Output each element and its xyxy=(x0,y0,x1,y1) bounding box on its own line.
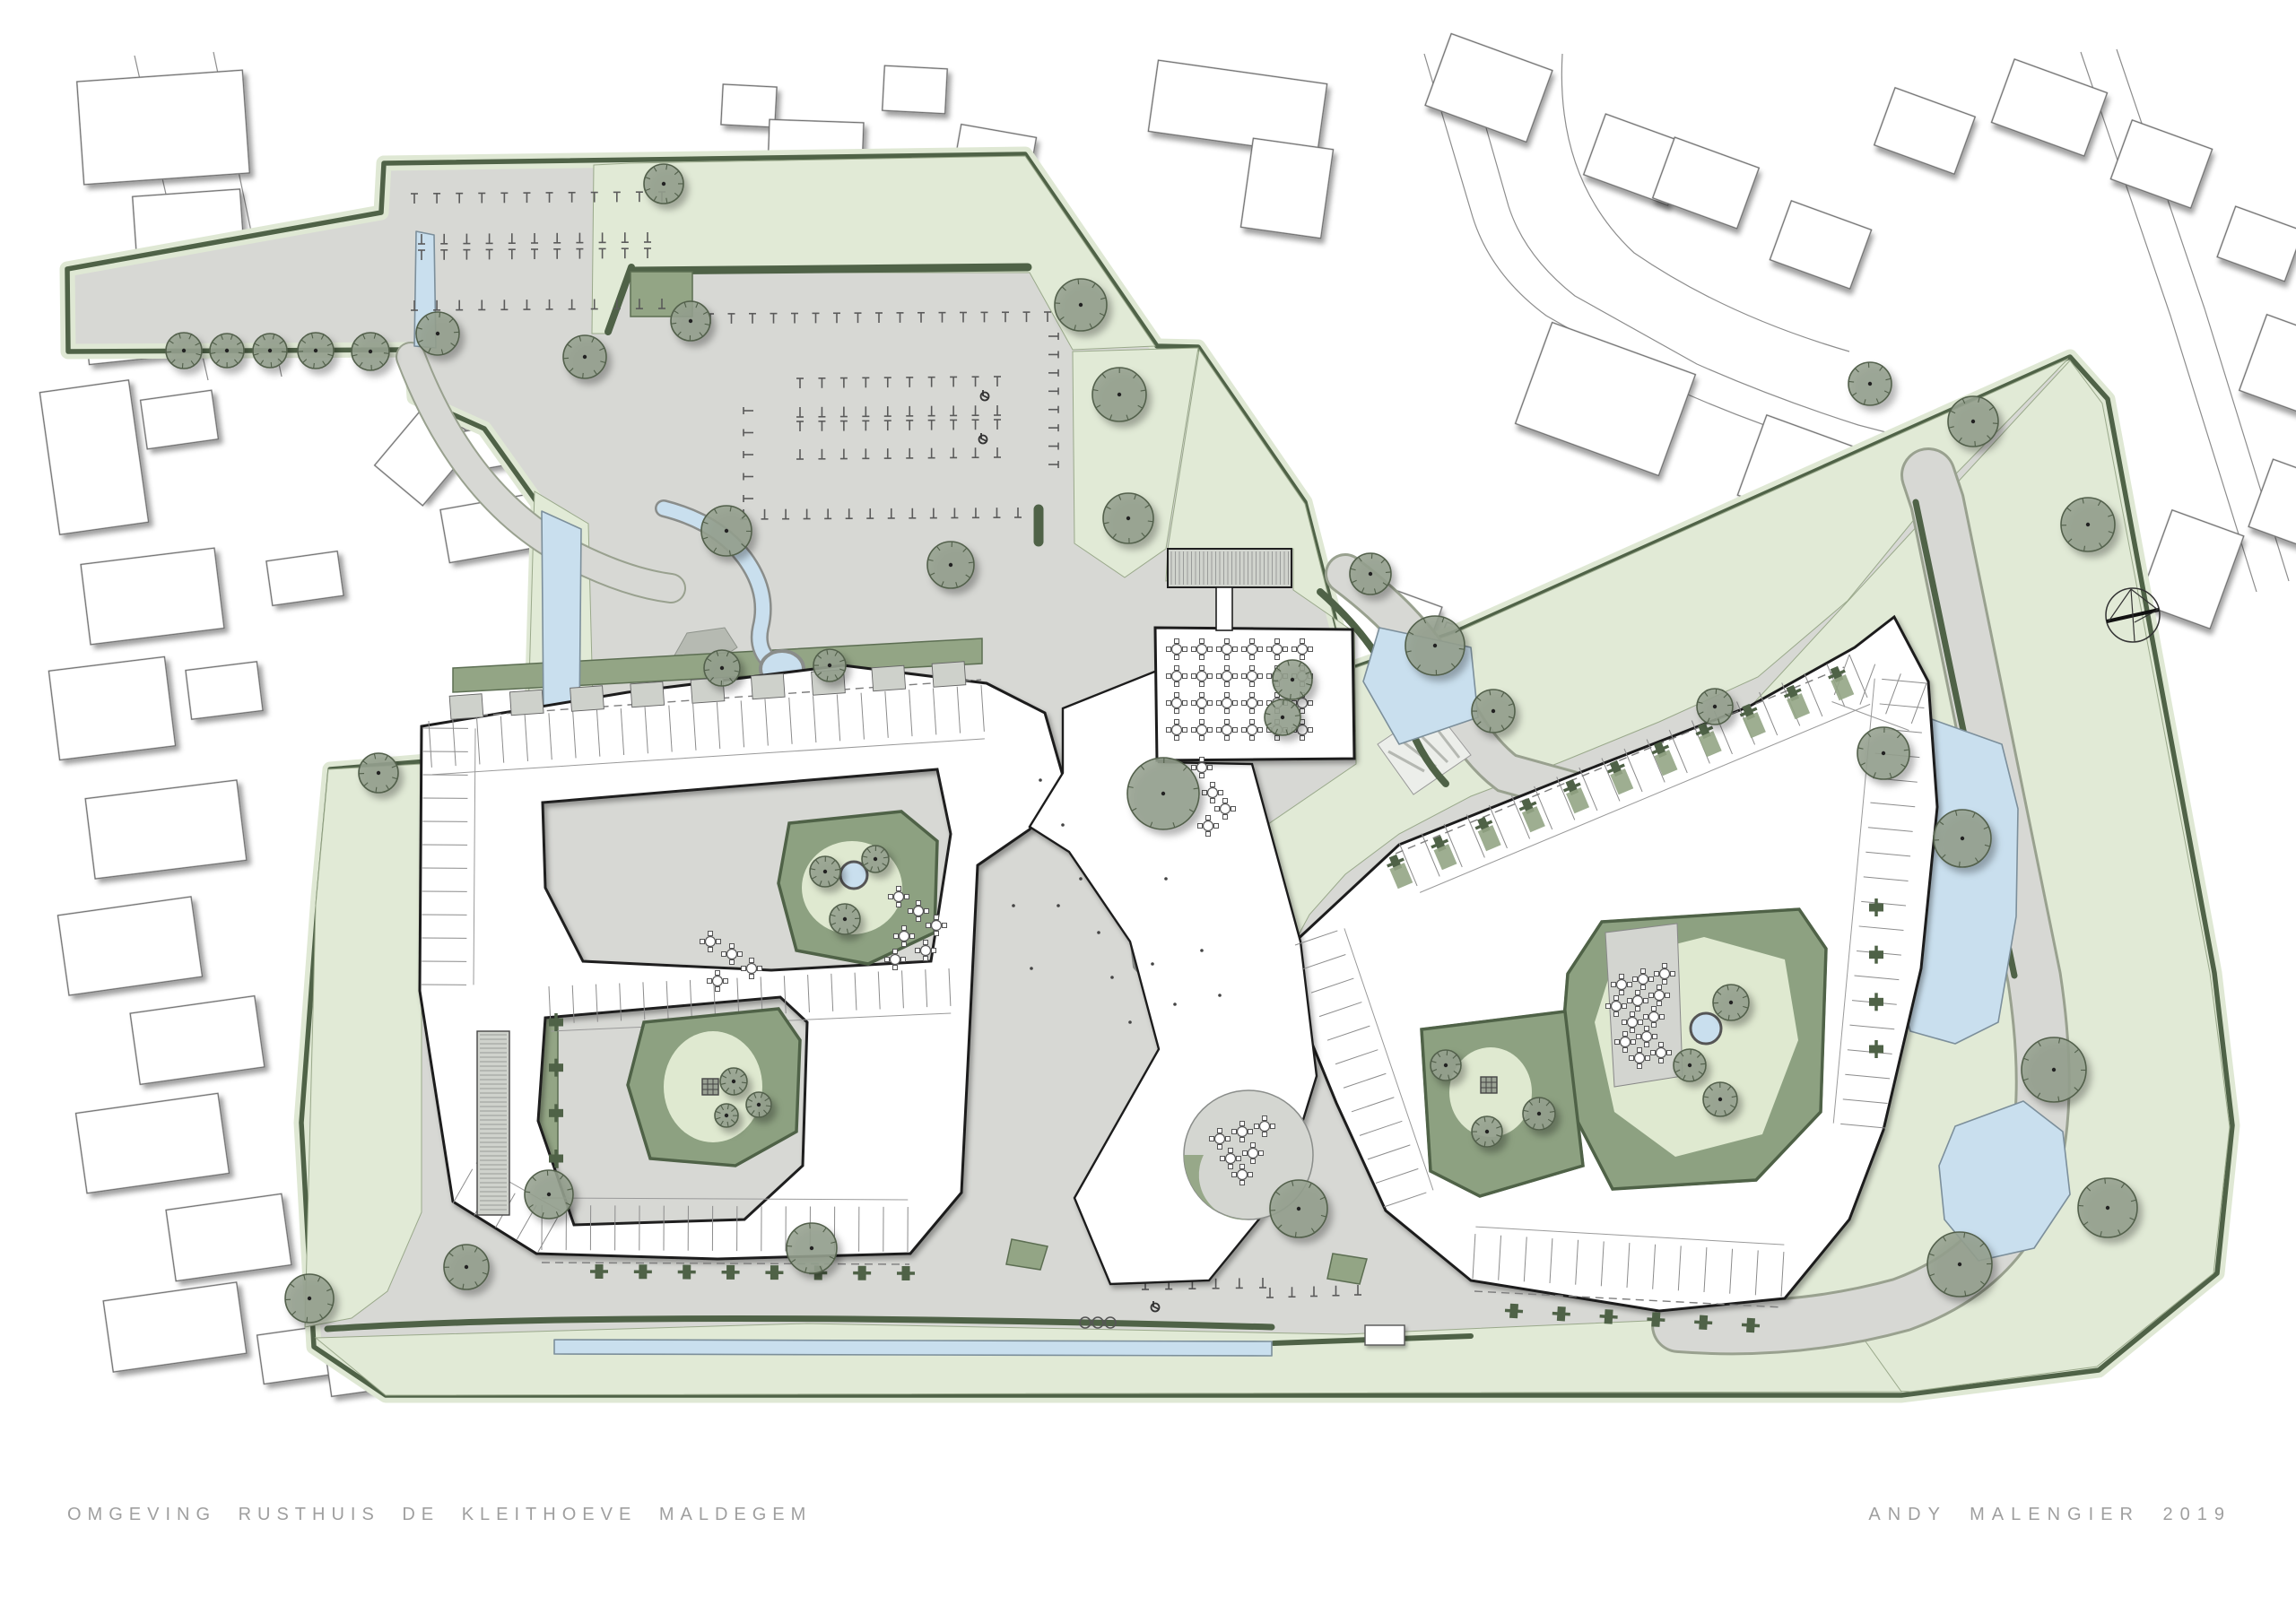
tree-icon xyxy=(1857,727,1909,779)
tree-icon xyxy=(1713,985,1749,1020)
context-building xyxy=(883,65,948,114)
plan-credit: ANDY MALENGIER 2019 xyxy=(1868,1505,2231,1525)
tree-icon xyxy=(671,301,710,341)
tree-icon xyxy=(210,334,244,368)
tree-icon xyxy=(2061,498,2115,551)
context-building xyxy=(1425,34,1552,143)
tree-icon xyxy=(1055,279,1107,331)
tree-icon xyxy=(830,904,860,934)
tree-icon xyxy=(285,1274,334,1323)
site-plan-page: OMGEVING RUSTHUIS DE KLEITHOEVE MALDEGEM… xyxy=(0,0,2296,1623)
context-building xyxy=(166,1193,291,1280)
tree-icon xyxy=(1405,616,1465,675)
tree-icon xyxy=(704,650,740,686)
tree-icon xyxy=(810,856,840,887)
tree-icon xyxy=(1674,1049,1706,1081)
context-building xyxy=(266,551,344,606)
tree-icon xyxy=(862,846,889,872)
tree-icon xyxy=(1472,1116,1502,1147)
tree-icon xyxy=(1703,1082,1737,1116)
tree-icon xyxy=(416,312,459,355)
tree-icon xyxy=(1103,493,1153,543)
tree-icon xyxy=(746,1092,771,1117)
context-building xyxy=(2110,120,2212,208)
tree-icon xyxy=(298,333,334,369)
context-building xyxy=(721,84,777,127)
context-building xyxy=(1148,60,1326,155)
tree-icon xyxy=(1697,689,1733,725)
tree-icon xyxy=(927,542,974,588)
context-building xyxy=(186,662,263,719)
tree-icon xyxy=(359,753,398,793)
tree-icon xyxy=(1934,810,1991,867)
tree-icon xyxy=(563,335,606,378)
covered-walkway xyxy=(477,1031,509,1215)
tree-icon xyxy=(644,164,683,204)
tree-icon xyxy=(1270,1180,1327,1237)
tree-icon xyxy=(166,333,202,369)
tree-icon xyxy=(1092,368,1146,421)
tree-icon xyxy=(444,1245,489,1289)
tree-icon xyxy=(352,333,389,370)
context-building xyxy=(1770,201,1871,289)
tree-icon xyxy=(1472,690,1515,733)
plan-title: OMGEVING RUSTHUIS DE KLEITHOEVE MALDEGEM xyxy=(67,1505,812,1525)
tree-icon xyxy=(1848,362,1892,405)
context-building xyxy=(130,996,265,1085)
tree-icon xyxy=(253,334,287,368)
site-plan-canvas xyxy=(0,0,2296,1623)
small-outbuilding xyxy=(1365,1325,1405,1345)
context-building xyxy=(2239,315,2296,412)
tree-icon xyxy=(1350,553,1391,595)
tree-icon xyxy=(1431,1050,1461,1081)
tree-icon xyxy=(715,1104,738,1127)
tree-icon xyxy=(1948,396,1998,447)
planter-grid-icon xyxy=(1481,1077,1497,1093)
context-building xyxy=(57,897,202,995)
context-building xyxy=(1991,59,2107,156)
tree-icon xyxy=(701,506,752,556)
tree-icon xyxy=(1127,758,1199,829)
planter-grid-icon xyxy=(702,1079,718,1095)
context-building xyxy=(76,1093,230,1193)
context-building xyxy=(141,390,219,449)
tree-icon xyxy=(1273,660,1312,699)
context-building xyxy=(1240,138,1333,239)
context-building xyxy=(103,1282,247,1372)
tree-icon xyxy=(720,1068,747,1095)
context-building xyxy=(85,780,247,879)
tree-icon xyxy=(1523,1098,1555,1130)
context-building xyxy=(2217,206,2296,282)
context-building xyxy=(1874,88,1976,174)
context-building xyxy=(1516,323,1696,476)
tree-icon xyxy=(2022,1037,2086,1102)
tree-icon xyxy=(813,649,846,681)
context-building xyxy=(48,656,175,759)
tree-icon xyxy=(2078,1178,2137,1237)
tree-icon xyxy=(1927,1232,1992,1297)
tree-icon xyxy=(787,1223,837,1273)
tree-icon xyxy=(1265,699,1300,735)
tree-icon xyxy=(525,1170,573,1219)
context-building xyxy=(39,380,148,534)
context-building xyxy=(81,548,224,645)
context-building xyxy=(77,70,250,185)
